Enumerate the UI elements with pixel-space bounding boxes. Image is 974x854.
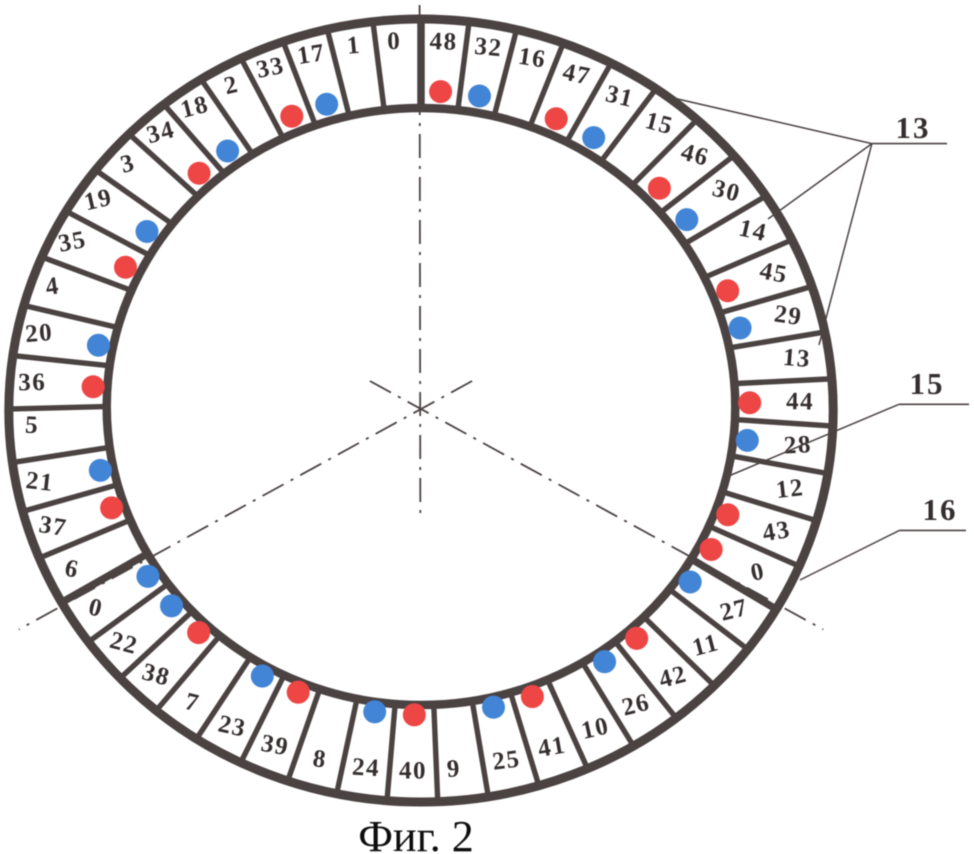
svg-text:28: 28 <box>783 431 812 459</box>
svg-text:0: 0 <box>387 28 402 55</box>
svg-text:16: 16 <box>923 492 958 527</box>
svg-text:48: 48 <box>429 28 458 56</box>
svg-text:12: 12 <box>775 474 806 504</box>
svg-text:43: 43 <box>761 516 793 547</box>
svg-text:45: 45 <box>758 257 791 289</box>
svg-text:37: 37 <box>37 511 69 542</box>
svg-text:35: 35 <box>56 226 89 258</box>
svg-text:33: 33 <box>254 52 287 84</box>
svg-text:5: 5 <box>24 412 39 440</box>
svg-text:44: 44 <box>786 388 814 415</box>
svg-text:16: 16 <box>516 43 548 74</box>
svg-text:Фиг. 2: Фиг. 2 <box>358 812 473 854</box>
svg-text:17: 17 <box>296 39 328 70</box>
svg-text:25: 25 <box>491 745 522 775</box>
svg-text:24: 24 <box>351 754 381 783</box>
svg-text:15: 15 <box>910 366 945 401</box>
svg-text:41: 41 <box>536 731 568 762</box>
svg-text:29: 29 <box>773 301 804 332</box>
svg-text:21: 21 <box>25 467 56 497</box>
svg-text:40: 40 <box>399 757 427 784</box>
svg-text:13: 13 <box>782 344 812 373</box>
svg-text:32: 32 <box>473 33 503 63</box>
svg-text:39: 39 <box>259 730 291 761</box>
svg-text:20: 20 <box>24 319 54 348</box>
svg-text:36: 36 <box>18 369 46 396</box>
svg-text:9: 9 <box>446 755 462 783</box>
svg-text:47: 47 <box>560 59 593 91</box>
svg-text:13: 13 <box>896 110 931 145</box>
svg-text:1: 1 <box>346 32 362 60</box>
